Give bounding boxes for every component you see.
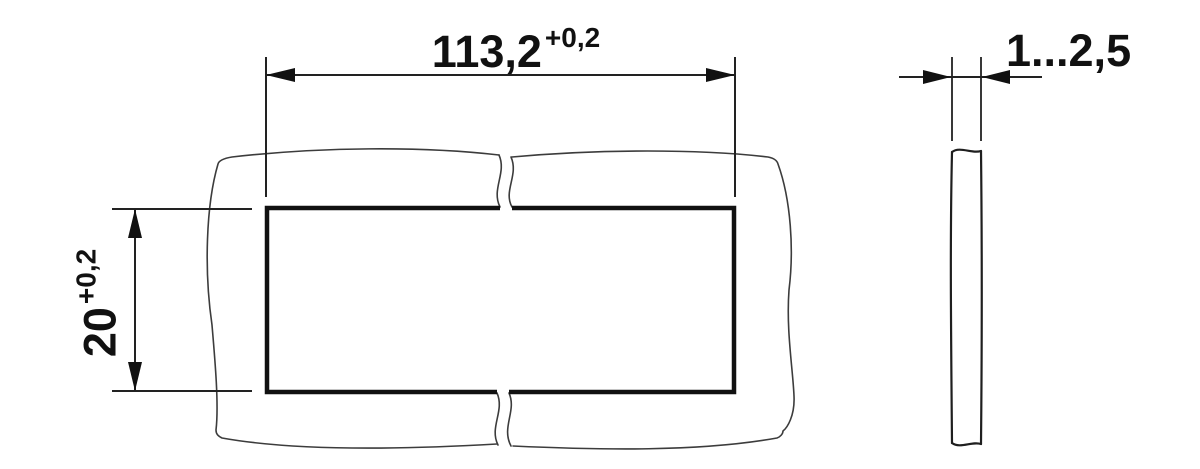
cutout-rectangle-right-part: [509, 208, 734, 392]
break-line-bottom-right: [508, 393, 512, 446]
panel-outline-right: [512, 151, 794, 449]
side-profile-right-edge: [981, 151, 982, 444]
width-arrowhead-right-icon: [706, 68, 735, 82]
panel-side-profile: [951, 150, 982, 446]
break-line-top-left: [497, 155, 501, 207]
thickness-dimension-value: 1...2,5: [1006, 25, 1131, 76]
cutout-rectangle-left-part: [267, 208, 500, 392]
side-profile-top-cap: [952, 150, 981, 152]
side-view: [899, 57, 1042, 445]
side-profile-bottom-cap: [952, 443, 981, 445]
height-dimension-tolerance: +0,2: [73, 249, 101, 304]
front-view: [112, 57, 794, 449]
break-line-bottom-left: [495, 393, 499, 445]
width-dimension-value: 113,2: [432, 26, 542, 77]
cutout-rectangle: [267, 208, 734, 392]
technical-drawing-canvas: 113,2+0,2 20+0,2 1...2,5: [0, 0, 1200, 469]
height-dimension-value: 20: [75, 307, 126, 357]
thickness-arrowhead-right-icon: [923, 70, 951, 84]
panel-outline-left: [207, 149, 499, 448]
width-arrowhead-left-icon: [266, 68, 295, 82]
thickness-dimension-label: 1...2,5: [1006, 28, 1131, 73]
height-arrowhead-down-icon: [128, 362, 142, 391]
width-dimension-label: 113,2+0,2: [432, 29, 600, 74]
height-arrowhead-up-icon: [128, 209, 142, 238]
height-dimension-label: 20+0,2: [78, 249, 123, 357]
side-profile-left-edge: [951, 152, 952, 443]
width-dimension-tolerance: +0,2: [545, 24, 600, 52]
break-line-top-right: [509, 157, 513, 207]
